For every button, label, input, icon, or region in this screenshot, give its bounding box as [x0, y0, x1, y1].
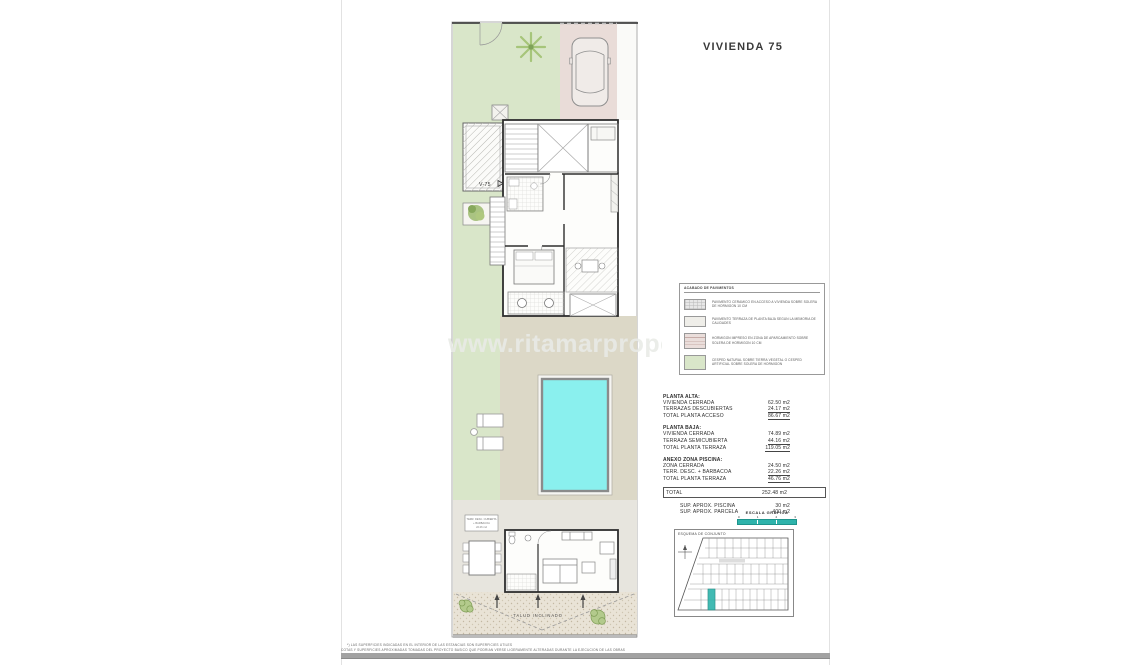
areas-table: PLANTA ALTA: VIVIENDA CERRADA62.50 m2 TE… [663, 394, 828, 515]
stair-void [538, 124, 588, 172]
plan-sheet: V-75 TERR. DESC. CUBIERTA + BARBACOA 22.… [0, 0, 1130, 665]
bathroom-1 [507, 177, 543, 211]
printed-concrete-swatch [684, 333, 706, 349]
side-garden [453, 316, 500, 500]
svg-text:TERR. DESC. CUBIERTA: TERR. DESC. CUBIERTA [466, 517, 496, 521]
sheet-left-edge [341, 0, 342, 665]
legend-item: CESPED NATURAL SOBRE TIERRA VEGETAL O CE… [684, 355, 820, 370]
legend-item: PAVIMENTO CERAMICO EN ACCESO A VIVIENDA … [684, 299, 820, 310]
svg-text:22.26 m2: 22.26 m2 [476, 525, 487, 529]
swimming-pool [538, 375, 612, 495]
paving-legend: ACABADO DE PAVIMENTOS PAVIMENTO CERAMICO… [679, 283, 825, 375]
legend-title: ACABADO DE PAVIMENTOS [684, 286, 820, 293]
footer-bar [341, 653, 830, 659]
table-row: TOTAL PLANTA TERRAZA46.76 m2 [663, 476, 790, 483]
legend-item: HORMIGON IMPRESO EN ZONA DE APARCAMIENTO… [684, 333, 820, 349]
footer-note-2: COTAS Y SUPERFICIES APROXIMADAS TOMADAS … [341, 648, 625, 652]
total-row: TOTAL252.48 m2 [663, 487, 826, 498]
courtyard-plant [463, 203, 490, 225]
scale-bar [737, 519, 797, 525]
palm-tree [517, 33, 545, 61]
svg-text:V-75: V-75 [479, 182, 491, 188]
ceramic-paving-swatch [684, 299, 706, 310]
legend-item: PAVIMENTO TERRAZA DE PLANTA BAJA SEGUN L… [684, 316, 820, 327]
wardrobe [611, 174, 618, 212]
terrace-paving-swatch [684, 316, 706, 327]
svg-text:+ BARBACOA: + BARBACOA [473, 521, 490, 525]
north-arrow-icon [678, 545, 692, 559]
graphic-scale: ESCALA GRAFICA 01 23 [736, 510, 798, 525]
table-row: TERRAZA SEMICUBIERTA44.16 m2 [663, 438, 790, 445]
lawn-swatch [684, 355, 706, 370]
site-plan-drawing [675, 536, 793, 613]
garden-structure [492, 105, 508, 120]
page-title: VIVIENDA 75 [703, 41, 783, 53]
slope-label: TALUD INCLINADO [513, 613, 562, 618]
utility-area [570, 294, 616, 316]
annex-building [505, 530, 618, 592]
bathroom-2 [508, 292, 564, 314]
covered-terrace [566, 248, 618, 292]
highlighted-plot [708, 589, 715, 610]
site-plan-box: ESQUEMA DE CONJUNTO [674, 529, 794, 617]
table-row: TOTAL PLANTA TERRAZA119.05 m2 [663, 445, 790, 452]
street-label-band [719, 559, 745, 563]
exterior-staircase [490, 197, 505, 265]
interior-staircase [505, 124, 538, 172]
footer-note-1: *) LAS SUPERFICIES INDICADAS EN EL INTER… [341, 643, 512, 647]
table-row: TOTAL PLANTA ACCESO86.67 m2 [663, 413, 790, 420]
surface-note-box: TERR. DESC. CUBIERTA + BARBACOA 22.26 m2 [465, 515, 498, 531]
car [570, 38, 611, 106]
bedroom-2 [514, 250, 554, 284]
table-row: TERR. DESC. + BARBACOA22.26 m2 [663, 469, 790, 476]
dining-table [463, 541, 501, 575]
table-row: TERRAZAS DESCUBIERTAS24.17 m2 [663, 406, 790, 413]
sheet-right-edge [829, 0, 830, 665]
floor-plan-drawing: V-75 TERR. DESC. CUBIERTA + BARBACOA 22.… [450, 14, 640, 650]
